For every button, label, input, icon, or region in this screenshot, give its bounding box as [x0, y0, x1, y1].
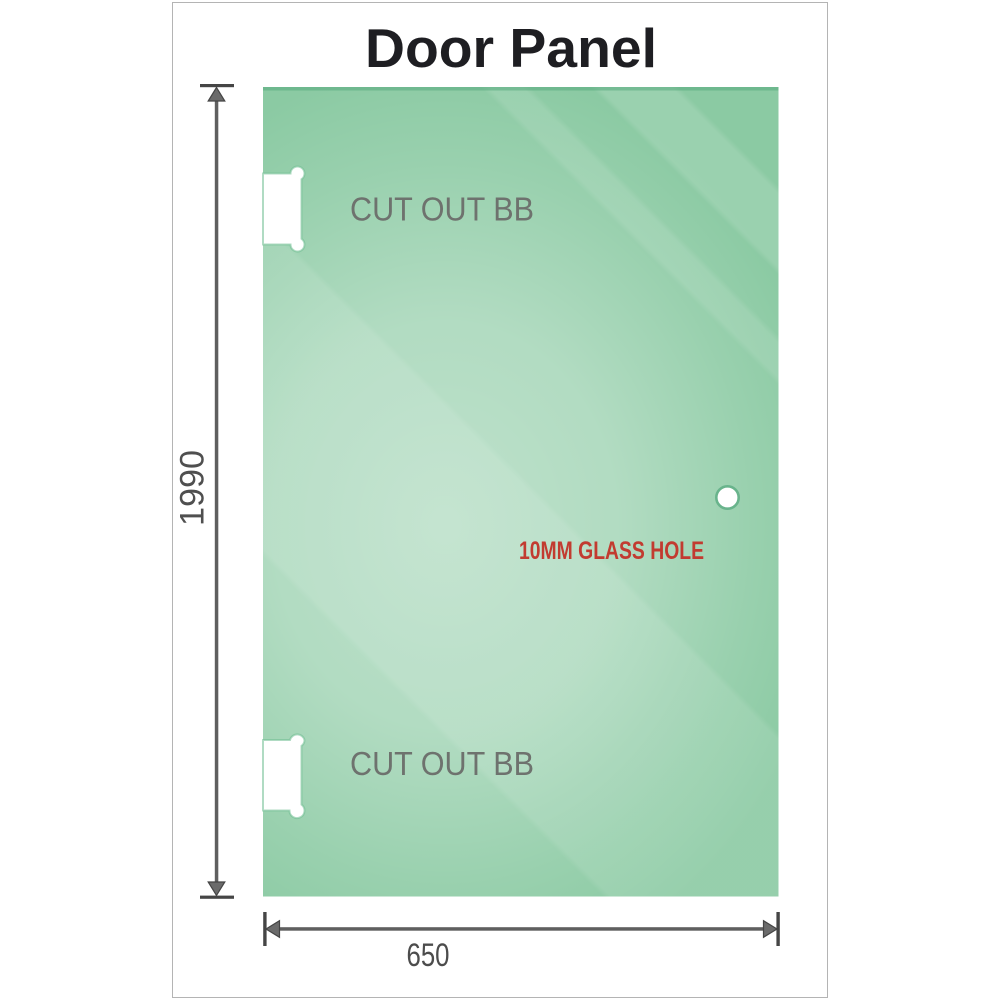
- svg-text:10MM GLASS HOLE: 10MM GLASS HOLE: [519, 537, 704, 565]
- svg-text:CUT OUT BB: CUT OUT BB: [350, 191, 534, 228]
- svg-text:Door Panel: Door Panel: [365, 17, 657, 79]
- svg-text:650: 650: [407, 937, 450, 973]
- svg-text:CUT OUT BB: CUT OUT BB: [350, 745, 534, 782]
- svg-text:1990: 1990: [174, 450, 212, 526]
